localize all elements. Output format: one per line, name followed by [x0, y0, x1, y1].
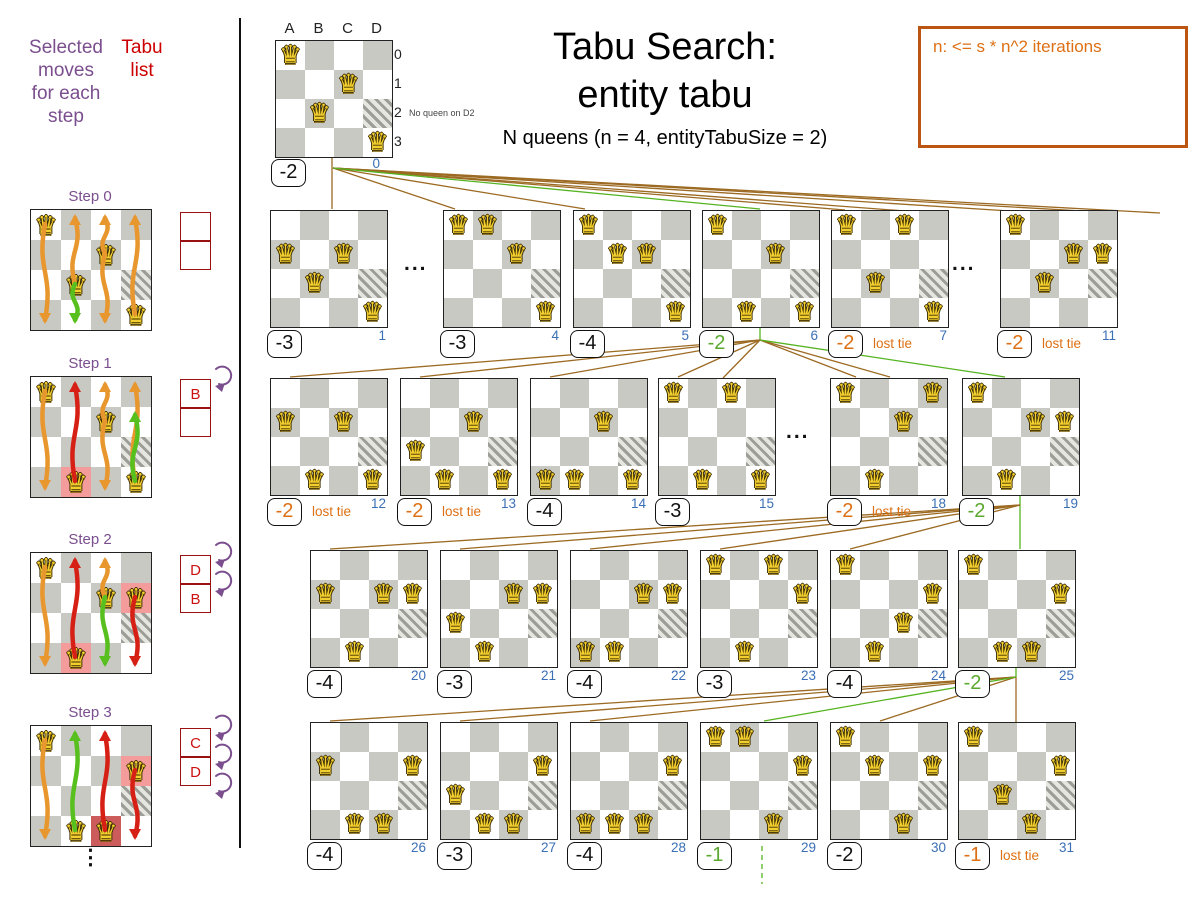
square-C0 — [91, 553, 121, 583]
queen-icon: ♛ — [991, 640, 1013, 665]
queen-icon: ♛ — [962, 553, 984, 578]
hidden-boards-ellipsis: ... — [404, 252, 428, 276]
square-D3: ♛ — [531, 298, 560, 327]
square-A2 — [959, 781, 988, 810]
square-A1 — [703, 240, 732, 269]
square-D3 — [1046, 638, 1075, 667]
square-A2 — [959, 609, 988, 638]
square-D2 — [1046, 781, 1075, 810]
square-D3 — [788, 810, 817, 839]
queen-icon: ♛ — [534, 300, 556, 325]
square-C2: ♛ — [889, 609, 918, 638]
queen-icon: ♛ — [473, 812, 495, 837]
step-board-0: ♛♛♛♛ — [30, 209, 152, 331]
square-B3: ♛ — [300, 466, 329, 495]
board-index: 15 — [730, 496, 774, 511]
square-A3 — [831, 810, 860, 839]
score-badge: -4 — [570, 330, 605, 358]
square-B3: ♛ — [600, 638, 629, 667]
square-B2 — [470, 609, 499, 638]
square-D2 — [398, 781, 427, 810]
board-index: 19 — [1034, 496, 1078, 511]
square-A1 — [831, 408, 860, 437]
square-A0: ♛ — [444, 211, 473, 240]
square-B1 — [988, 580, 1017, 609]
square-C3 — [1021, 466, 1050, 495]
queen-icon: ♛ — [632, 582, 654, 607]
square-D1: ♛ — [121, 583, 151, 613]
square-B1 — [340, 580, 369, 609]
square-B0 — [430, 379, 459, 408]
queen-icon: ♛ — [791, 754, 813, 779]
board-index: 0 — [336, 156, 380, 171]
square-B2 — [730, 609, 759, 638]
square-C1: ♛ — [91, 583, 121, 613]
queen-icon: ♛ — [921, 381, 943, 406]
board-index: 22 — [642, 668, 686, 683]
square-B2 — [860, 781, 889, 810]
square-B1 — [300, 408, 329, 437]
board-11: ♛♛♛♛ — [1000, 210, 1118, 328]
square-A3 — [963, 466, 992, 495]
square-C3: ♛ — [629, 810, 658, 839]
square-D1 — [919, 240, 948, 269]
square-B0: ♛ — [730, 723, 759, 752]
score-badge: -4 — [567, 670, 602, 698]
square-D1: ♛ — [788, 580, 817, 609]
square-A0 — [531, 379, 560, 408]
queen-icon: ♛ — [793, 300, 815, 325]
square-A3: ♛ — [571, 810, 600, 839]
square-A0 — [311, 551, 340, 580]
queen-icon: ♛ — [892, 410, 914, 435]
square-D2 — [358, 437, 387, 466]
square-A0 — [571, 723, 600, 752]
square-D0 — [746, 379, 775, 408]
square-B3 — [861, 298, 890, 327]
square-C2 — [717, 437, 746, 466]
square-C3 — [329, 466, 358, 495]
square-C2 — [459, 437, 488, 466]
square-A0: ♛ — [31, 553, 61, 583]
square-C1 — [1017, 752, 1046, 781]
board-1: ♛♛♛♛ — [270, 210, 388, 328]
queen-icon: ♛ — [1020, 640, 1042, 665]
queen-icon: ♛ — [661, 754, 683, 779]
square-B1 — [430, 408, 459, 437]
square-B3: ♛ — [988, 638, 1017, 667]
queen-icon: ♛ — [404, 439, 426, 464]
square-B2: ♛ — [61, 270, 91, 300]
square-C2 — [334, 99, 363, 128]
square-B0 — [732, 211, 761, 240]
square-C3: ♛ — [499, 810, 528, 839]
board-20: ♛♛♛♛ — [310, 550, 428, 668]
square-D1: ♛ — [1050, 408, 1079, 437]
board-index: 23 — [772, 668, 816, 683]
queen-icon: ♛ — [921, 754, 943, 779]
queen-icon: ♛ — [343, 640, 365, 665]
square-B1 — [470, 752, 499, 781]
square-A2 — [31, 437, 61, 467]
queen-icon: ♛ — [662, 381, 684, 406]
square-C3 — [759, 638, 788, 667]
square-D1 — [358, 240, 387, 269]
square-B2 — [860, 609, 889, 638]
score-badge: -3 — [655, 498, 690, 526]
score-badge: -4 — [307, 842, 342, 870]
board-index: 29 — [772, 840, 816, 855]
square-C0 — [759, 723, 788, 752]
square-B2 — [730, 781, 759, 810]
square-A2 — [571, 781, 600, 810]
hidden-boards-ellipsis: ... — [952, 252, 976, 276]
square-B3: ♛ — [860, 638, 889, 667]
square-D0 — [790, 211, 819, 240]
square-A0: ♛ — [832, 211, 861, 240]
queen-icon: ♛ — [592, 410, 614, 435]
square-B0: ♛ — [473, 211, 502, 240]
square-D2 — [358, 269, 387, 298]
queen-icon: ♛ — [1049, 582, 1071, 607]
square-C3 — [1059, 298, 1088, 327]
queen-icon: ♛ — [491, 468, 513, 493]
step-board-1: ♛♛♛♛ — [30, 376, 152, 498]
root-score-badge: -2 — [271, 159, 306, 187]
square-B2 — [340, 609, 369, 638]
step-board-2: ♛♛♛♛ — [30, 552, 152, 674]
square-B2 — [600, 781, 629, 810]
queen-icon: ♛ — [401, 582, 423, 607]
square-D2 — [363, 99, 392, 128]
queen-icon: ♛ — [991, 783, 1013, 808]
square-D3: ♛ — [746, 466, 775, 495]
square-C0 — [629, 551, 658, 580]
square-D1: ♛ — [528, 580, 557, 609]
queen-icon: ♛ — [303, 468, 325, 493]
score-badge: -2 — [397, 498, 432, 526]
square-B0 — [988, 551, 1017, 580]
square-A3 — [311, 810, 340, 839]
square-C3 — [717, 466, 746, 495]
score-badge: -3 — [440, 330, 475, 358]
queen-icon: ♛ — [34, 212, 57, 238]
board-26: ♛♛♛♛ — [310, 722, 428, 840]
square-D0 — [1046, 551, 1075, 580]
square-C3 — [91, 467, 121, 497]
queen-icon: ♛ — [962, 725, 984, 750]
square-B1 — [861, 240, 890, 269]
square-C3 — [761, 298, 790, 327]
queen-icon: ♛ — [361, 468, 383, 493]
square-A3: ♛ — [531, 466, 560, 495]
queen-icon: ♛ — [603, 812, 625, 837]
square-C1: ♛ — [632, 240, 661, 269]
square-B1 — [600, 752, 629, 781]
square-C2 — [91, 270, 121, 300]
square-D3 — [121, 643, 151, 673]
square-C0: ♛ — [717, 379, 746, 408]
square-C1: ♛ — [629, 580, 658, 609]
queen-icon: ♛ — [343, 812, 365, 837]
queen-icon: ♛ — [921, 582, 943, 607]
square-D1: ♛ — [788, 752, 817, 781]
tabu-insert-arrow-icon — [210, 740, 238, 770]
square-C0 — [369, 723, 398, 752]
square-C1 — [1017, 580, 1046, 609]
board-19: ♛♛♛♛ — [962, 378, 1080, 496]
square-D1: ♛ — [918, 752, 947, 781]
board-index: 30 — [902, 840, 946, 855]
square-B3: ♛ — [470, 638, 499, 667]
queen-icon: ♛ — [1053, 410, 1075, 435]
candidate-move-line — [333, 168, 1160, 213]
score-badge: -4 — [527, 498, 562, 526]
queen-icon: ♛ — [749, 468, 771, 493]
square-D3 — [528, 638, 557, 667]
square-D1 — [790, 240, 819, 269]
square-A0: ♛ — [1001, 211, 1030, 240]
square-B0 — [61, 726, 91, 756]
square-C3 — [334, 128, 363, 157]
square-B0 — [730, 551, 759, 580]
queen-icon: ♛ — [94, 585, 117, 611]
square-D3: ♛ — [121, 300, 151, 330]
square-D0 — [398, 723, 427, 752]
square-B1 — [688, 408, 717, 437]
square-D3: ♛ — [790, 298, 819, 327]
square-A1 — [1001, 240, 1030, 269]
board-index: 25 — [1030, 668, 1074, 683]
square-B0 — [860, 379, 889, 408]
square-A0: ♛ — [31, 726, 61, 756]
square-D1: ♛ — [918, 580, 947, 609]
square-B0 — [603, 211, 632, 240]
square-A1 — [441, 752, 470, 781]
square-A3 — [31, 816, 61, 846]
queen-icon: ♛ — [577, 213, 599, 238]
square-D3 — [1088, 298, 1117, 327]
square-C3 — [889, 638, 918, 667]
square-C2 — [91, 786, 121, 816]
square-A1 — [571, 580, 600, 609]
board-28: ♛♛♛♛ — [570, 722, 688, 840]
square-D3 — [658, 810, 687, 839]
score-badge: -2 — [828, 330, 863, 358]
board-index: 24 — [902, 668, 946, 683]
square-A2 — [276, 99, 305, 128]
square-D0 — [918, 551, 947, 580]
square-B3: ♛ — [688, 466, 717, 495]
square-D1: ♛ — [1046, 580, 1075, 609]
square-D2 — [121, 270, 151, 300]
board-23: ♛♛♛♛ — [700, 550, 818, 668]
square-D1 — [746, 408, 775, 437]
square-B3 — [305, 128, 334, 157]
queen-icon: ♛ — [94, 818, 117, 844]
square-B0 — [861, 211, 890, 240]
square-C1 — [629, 752, 658, 781]
queen-icon: ♛ — [332, 242, 354, 267]
board-index: 1 — [342, 328, 386, 343]
lost-tie-label: lost tie — [873, 336, 912, 351]
queen-icon: ♛ — [314, 582, 336, 607]
square-A2 — [31, 613, 61, 643]
square-A0 — [311, 723, 340, 752]
score-badge: -2 — [827, 498, 862, 526]
square-C1 — [717, 408, 746, 437]
square-A3 — [276, 128, 305, 157]
square-C3: ♛ — [889, 810, 918, 839]
lost-tie-label: lost tie — [442, 504, 481, 519]
square-C1: ♛ — [502, 240, 531, 269]
square-B0 — [560, 379, 589, 408]
queen-icon: ♛ — [1020, 812, 1042, 837]
square-A3 — [441, 810, 470, 839]
square-A2 — [444, 269, 473, 298]
square-C2 — [369, 781, 398, 810]
square-C3 — [890, 298, 919, 327]
queen-icon: ♛ — [762, 812, 784, 837]
square-B3 — [860, 810, 889, 839]
square-C2 — [589, 437, 618, 466]
tabu-insert-arrow-icon — [210, 711, 238, 741]
square-C0 — [329, 211, 358, 240]
square-C3 — [459, 466, 488, 495]
square-A3 — [831, 466, 860, 495]
board-15: ♛♛♛♛ — [658, 378, 776, 496]
square-D3 — [918, 810, 947, 839]
square-B3 — [61, 300, 91, 330]
square-A1 — [701, 752, 730, 781]
square-A3 — [401, 466, 430, 495]
square-C1: ♛ — [334, 70, 363, 99]
square-C0 — [889, 379, 918, 408]
square-B3: ♛ — [732, 298, 761, 327]
square-B1 — [305, 70, 334, 99]
square-D0 — [919, 211, 948, 240]
square-C0 — [499, 551, 528, 580]
queen-icon: ♛ — [1049, 754, 1071, 779]
square-A2: ♛ — [401, 437, 430, 466]
square-C2 — [1021, 437, 1050, 466]
score-badge: -4 — [307, 670, 342, 698]
square-A1 — [959, 580, 988, 609]
score-badge: -3 — [437, 842, 472, 870]
square-C0: ♛ — [759, 551, 788, 580]
square-C3: ♛ — [1017, 638, 1046, 667]
square-B3: ♛ — [470, 810, 499, 839]
queen-icon: ♛ — [433, 468, 455, 493]
square-C2 — [369, 609, 398, 638]
square-A3 — [574, 298, 603, 327]
square-C0: ♛ — [890, 211, 919, 240]
square-A0 — [441, 551, 470, 580]
square-D2 — [488, 437, 517, 466]
candidate-move-line — [330, 677, 1016, 721]
square-B1 — [560, 408, 589, 437]
lost-tie-label: lost tie — [872, 504, 911, 519]
board-5: ♛♛♛♛ — [573, 210, 691, 328]
tabu-insert-arrow-icon — [210, 769, 238, 799]
square-D2 — [918, 609, 947, 638]
square-B1 — [860, 580, 889, 609]
queen-icon: ♛ — [372, 582, 394, 607]
square-C1: ♛ — [369, 580, 398, 609]
square-B1 — [730, 752, 759, 781]
queen-icon: ♛ — [863, 754, 885, 779]
square-A0: ♛ — [959, 723, 988, 752]
queen-icon: ♛ — [632, 812, 654, 837]
tabu-insert-arrow-icon — [210, 567, 238, 597]
square-A0 — [401, 379, 430, 408]
board-24: ♛♛♛♛ — [830, 550, 948, 668]
square-D1 — [121, 240, 151, 270]
square-B0 — [600, 723, 629, 752]
square-B0 — [340, 551, 369, 580]
lost-tie-label: lost tie — [312, 504, 351, 519]
square-C1: ♛ — [761, 240, 790, 269]
square-A0: ♛ — [831, 723, 860, 752]
square-C1: ♛ — [1059, 240, 1088, 269]
board-18: ♛♛♛♛ — [830, 378, 948, 496]
square-C0 — [889, 723, 918, 752]
square-A0: ♛ — [276, 41, 305, 70]
square-B0 — [305, 41, 334, 70]
queen-icon: ♛ — [863, 468, 885, 493]
square-C0 — [761, 211, 790, 240]
queen-icon: ♛ — [661, 582, 683, 607]
square-D3 — [528, 810, 557, 839]
square-C1: ♛ — [329, 240, 358, 269]
square-A2 — [31, 270, 61, 300]
square-D3: ♛ — [358, 466, 387, 495]
square-D2 — [661, 269, 690, 298]
square-B2 — [988, 609, 1017, 638]
square-B1 — [988, 752, 1017, 781]
queen-icon: ♛ — [1091, 242, 1113, 267]
square-D2 — [121, 437, 151, 467]
square-A2 — [271, 269, 300, 298]
square-B0 — [300, 379, 329, 408]
square-A3 — [31, 300, 61, 330]
square-D3: ♛ — [488, 466, 517, 495]
square-C1 — [759, 580, 788, 609]
square-C2 — [761, 269, 790, 298]
square-A0: ♛ — [31, 377, 61, 407]
square-C3 — [91, 300, 121, 330]
square-A3 — [831, 638, 860, 667]
square-D0 — [658, 723, 687, 752]
score-badge: -4 — [567, 842, 602, 870]
candidate-move-line — [333, 168, 905, 211]
square-D3: ♛ — [661, 298, 690, 327]
root-board: ♛♛♛♛ — [275, 40, 393, 158]
square-D2 — [918, 437, 947, 466]
square-B2 — [600, 609, 629, 638]
queen-icon: ♛ — [64, 469, 87, 495]
queen-icon: ♛ — [401, 754, 423, 779]
square-D3: ♛ — [618, 466, 647, 495]
square-D0 — [788, 723, 817, 752]
square-C1 — [91, 756, 121, 786]
queen-icon: ♛ — [1024, 410, 1046, 435]
queen-icon: ♛ — [64, 645, 87, 671]
square-C3 — [329, 298, 358, 327]
square-B0 — [988, 723, 1017, 752]
square-D2 — [919, 269, 948, 298]
square-C3 — [502, 298, 531, 327]
